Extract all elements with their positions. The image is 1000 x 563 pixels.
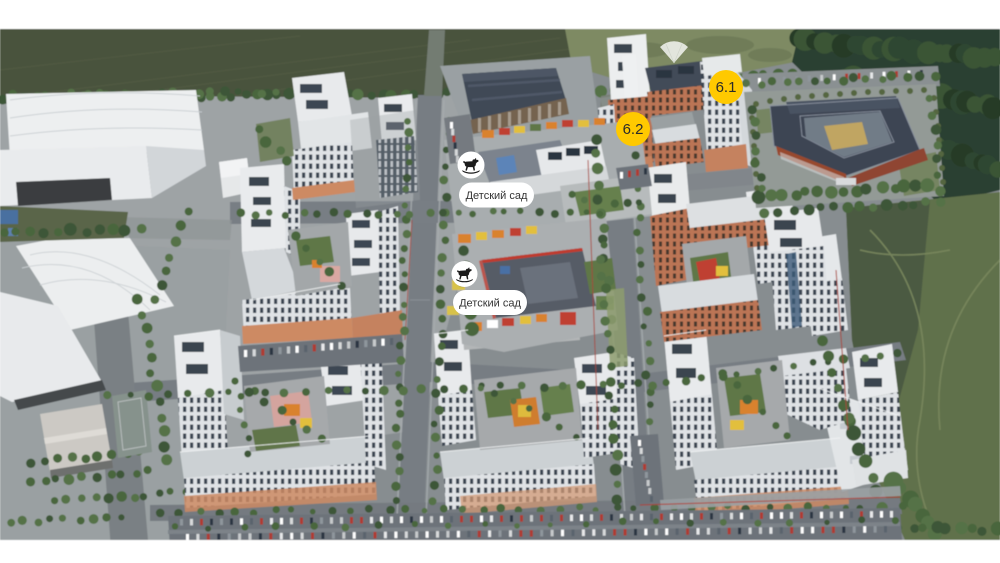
- svg-text:Детский сад: Детский сад: [459, 298, 521, 310]
- svg-text:6.2: 6.2: [623, 121, 644, 138]
- svg-text:Детский сад: Детский сад: [466, 190, 528, 202]
- svg-text:6.1: 6.1: [716, 79, 737, 96]
